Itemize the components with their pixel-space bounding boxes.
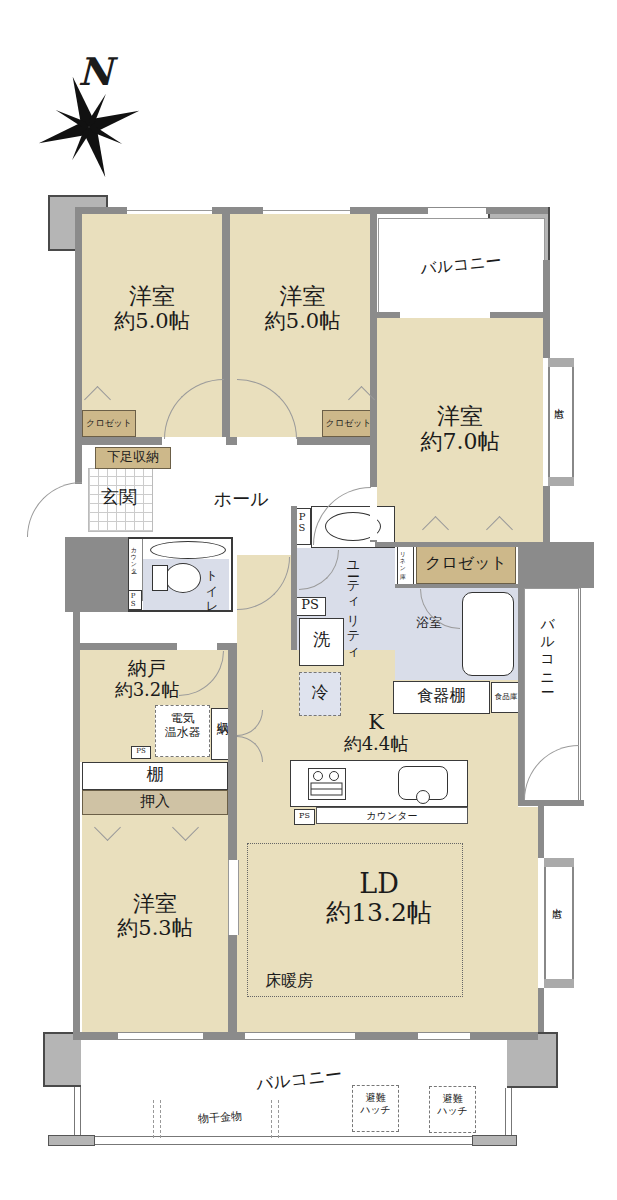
bedroom-b-size: 約5.0帖 <box>240 309 365 333</box>
toilet-label: トイレ <box>204 561 218 608</box>
balcony-rail-end-left <box>48 1135 95 1146</box>
bedroom-d-name: 洋室 <box>92 891 218 916</box>
entrance-label: 玄関 <box>90 487 148 508</box>
escape-hatch-1-line1: 避難 <box>366 1092 386 1103</box>
escape-hatch-2-line1: 避難 <box>443 1093 463 1104</box>
futon-closet-label: 押入 <box>82 793 228 810</box>
balcony-rail-bottom <box>50 1136 512 1145</box>
linen-label: リネン庫 <box>399 547 406 568</box>
bedroom-a-size: 約5.0帖 <box>92 309 212 333</box>
bay-window-top-label: 出窓 <box>553 400 565 402</box>
bedroom-b-name: 洋室 <box>240 283 365 309</box>
kitchen-name: K <box>330 710 422 734</box>
bay-window-bottom-cap1 <box>544 858 574 867</box>
window-bedroom-c-top <box>400 312 490 318</box>
door-gap-storage <box>177 643 217 650</box>
bedroom-b-label: 洋室 約5.0帖 <box>240 283 365 334</box>
living-dining-label: LD 約13.2帖 <box>298 868 460 928</box>
window-bottom-2 <box>245 1033 355 1039</box>
hall-label: ホール <box>196 489 286 510</box>
bedroom-d-size: 約5.3帖 <box>92 916 218 940</box>
window-top-2 <box>263 207 350 214</box>
toilet-counter-label: カウンター <box>130 543 137 570</box>
door-gap-bedroom-d <box>228 860 239 935</box>
bathtub <box>462 592 514 676</box>
storage-room-name: 納戸 <box>88 658 206 680</box>
ps-storage-label: PS <box>131 747 151 755</box>
pillar-bottom-right <box>498 1032 558 1088</box>
escape-hatch-1-label: 避難 ハッチ <box>352 1092 399 1115</box>
kitchen-sink-faucet <box>416 790 430 804</box>
bay-window-top-cap1 <box>548 358 574 367</box>
wall-entrance-block <box>65 537 128 612</box>
bedroom-a-label: 洋室 約5.0帖 <box>92 283 212 334</box>
door-arc-bedroom-c <box>313 487 371 545</box>
wall-rooms-bottom <box>82 437 375 445</box>
wall-chunk-right <box>518 542 594 588</box>
bedroom-a-name: 洋室 <box>92 283 212 309</box>
ps-hall-label: PS <box>296 511 308 533</box>
toilet-bowl <box>165 563 201 593</box>
balcony-rail-right <box>505 1088 512 1138</box>
escape-hatch-2-label: 避難 ハッチ <box>429 1093 476 1116</box>
bedroom-c-label: 洋室 約7.0帖 <box>385 403 535 455</box>
window-top-3 <box>428 208 486 214</box>
fridge-label: 冷 <box>299 683 341 703</box>
balcony-rail-end-right <box>472 1135 517 1146</box>
bedroom-c-size: 約7.0帖 <box>385 429 535 454</box>
wall-ld-right-2 <box>538 988 544 1032</box>
storage-room-size: 約3.2帖 <box>88 680 206 701</box>
toilet-seat <box>152 565 168 591</box>
floor-heating-label: 床暖房 <box>252 972 326 990</box>
shoe-storage-label: 下足収納 <box>95 450 171 465</box>
window-bottom-1 <box>118 1033 203 1039</box>
utility-label: ユーティリティ <box>345 553 360 656</box>
cupboard-label: 食器棚 <box>393 687 490 705</box>
ps-kitchen-label: PS <box>294 811 315 820</box>
ps-utility-label: PS <box>294 598 326 613</box>
wall-ld-right-1 <box>538 806 544 858</box>
kitchen-label: K 約4.4帖 <box>330 710 422 755</box>
compass-north-label: N <box>78 50 113 94</box>
window-top-1 <box>127 207 212 214</box>
ps-toilet-label: PS <box>129 592 137 608</box>
wall-hall-utility <box>291 506 297 650</box>
bay-window-top-cap2 <box>548 477 574 486</box>
door-arc-entrance <box>27 482 82 537</box>
wall-right-1 <box>543 260 550 318</box>
water-heater-line1: 電気 <box>171 711 195 725</box>
stove-icon <box>308 768 346 800</box>
wall-right-3 <box>543 486 550 544</box>
shelf-label: 棚 <box>82 765 228 785</box>
wall-right-2 <box>543 318 550 358</box>
balcony-rail-left <box>74 1087 81 1138</box>
pantry-label: 食品庫 <box>491 693 521 702</box>
wall-balcony-right-left <box>518 588 524 806</box>
storage-closet-label: 収納 <box>215 712 229 714</box>
bay-window-bottom-label: 出窓 <box>551 900 563 902</box>
bedroom-c-name: 洋室 <box>385 403 535 429</box>
laundry-mark-1 <box>153 1100 161 1138</box>
floor-plan: N トイレ カウンター PS PS リネン庫 クロゼット 浴室 ユーティリティ … <box>0 0 617 1200</box>
closet-a-label: クロゼット <box>82 418 136 428</box>
wall-left-upper <box>75 214 82 484</box>
laundry-mark-2 <box>271 1100 279 1138</box>
closet-main-label: クロゼット <box>424 554 508 572</box>
kitchen-size: 約4.4帖 <box>330 734 422 755</box>
wall-balcony-right-bottom <box>518 800 584 806</box>
door-gap-bedroom-c <box>370 487 377 540</box>
storage-room-label: 納戸 約3.2帖 <box>88 658 206 701</box>
closet-b-label: クロゼット <box>322 418 375 428</box>
wall-closet-row-bottom <box>395 584 520 588</box>
toilet-tank <box>150 541 226 559</box>
living-dining-name: LD <box>298 868 460 899</box>
wall-storage-right <box>228 643 237 815</box>
window-bottom-3 <box>418 1033 470 1039</box>
wall-left-mid <box>73 612 80 1032</box>
living-dining-size: 約13.2帖 <box>298 899 460 928</box>
escape-hatch-2-line2: ハッチ <box>437 1105 468 1116</box>
kitchen-counter-label: カウンター <box>336 810 448 822</box>
bedroom-d-label: 洋室 約5.3帖 <box>92 891 218 940</box>
water-heater-label: 電気 温水器 <box>155 712 210 740</box>
escape-hatch-1-line2: ハッチ <box>360 1104 391 1115</box>
water-heater-line2: 温水器 <box>165 725 201 739</box>
bay-window-bottom-cap2 <box>544 979 574 988</box>
bay-window-bottom <box>544 858 574 988</box>
bay-window-top <box>548 358 574 486</box>
balcony-right-label: バルコニー <box>540 608 556 687</box>
washer-label: 洗 <box>299 630 344 650</box>
